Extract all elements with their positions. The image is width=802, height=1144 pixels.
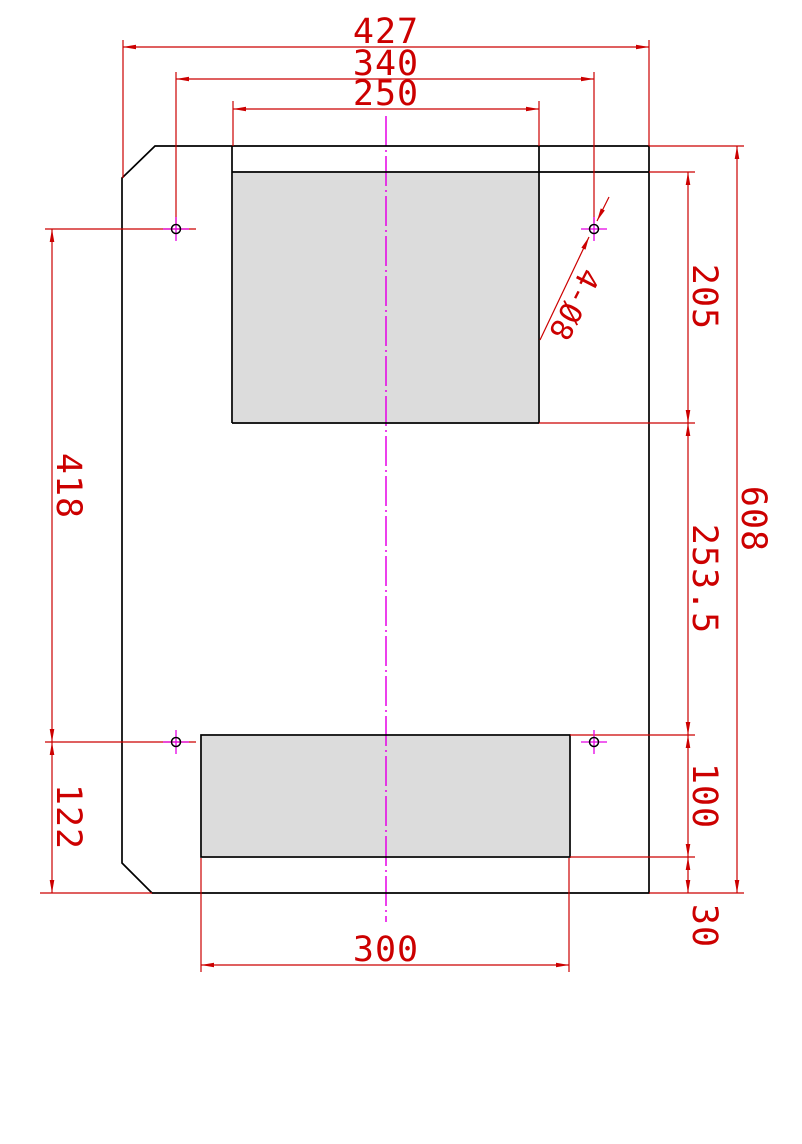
dim-text-bottom-slot-height: 100 — [684, 763, 724, 829]
dim-text-bottom-slot-width: 300 — [353, 930, 419, 970]
dim-text-mid-section: 253.5 — [684, 524, 724, 634]
dim-text-overall-height: 608 — [733, 486, 773, 552]
dim-text-top-slot-width: 250 — [353, 74, 419, 114]
dim-text-top-slot-height: 205 — [684, 264, 724, 330]
slot-fills — [202, 173, 569, 856]
hole-leader-upper — [597, 197, 609, 221]
cad-drawing: 427 340 250 300 418 122 205 253.5 100 30… — [0, 0, 802, 1144]
dim-text-hole-span-height: 418 — [48, 453, 88, 519]
hole-callout-text: 4-Ø8 — [541, 262, 607, 346]
drawing-page: 427 340 250 300 418 122 205 253.5 100 30… — [0, 0, 802, 1144]
dim-text-bottom-section: 122 — [48, 784, 88, 850]
dim-text-bottom-margin: 30 — [684, 904, 724, 948]
